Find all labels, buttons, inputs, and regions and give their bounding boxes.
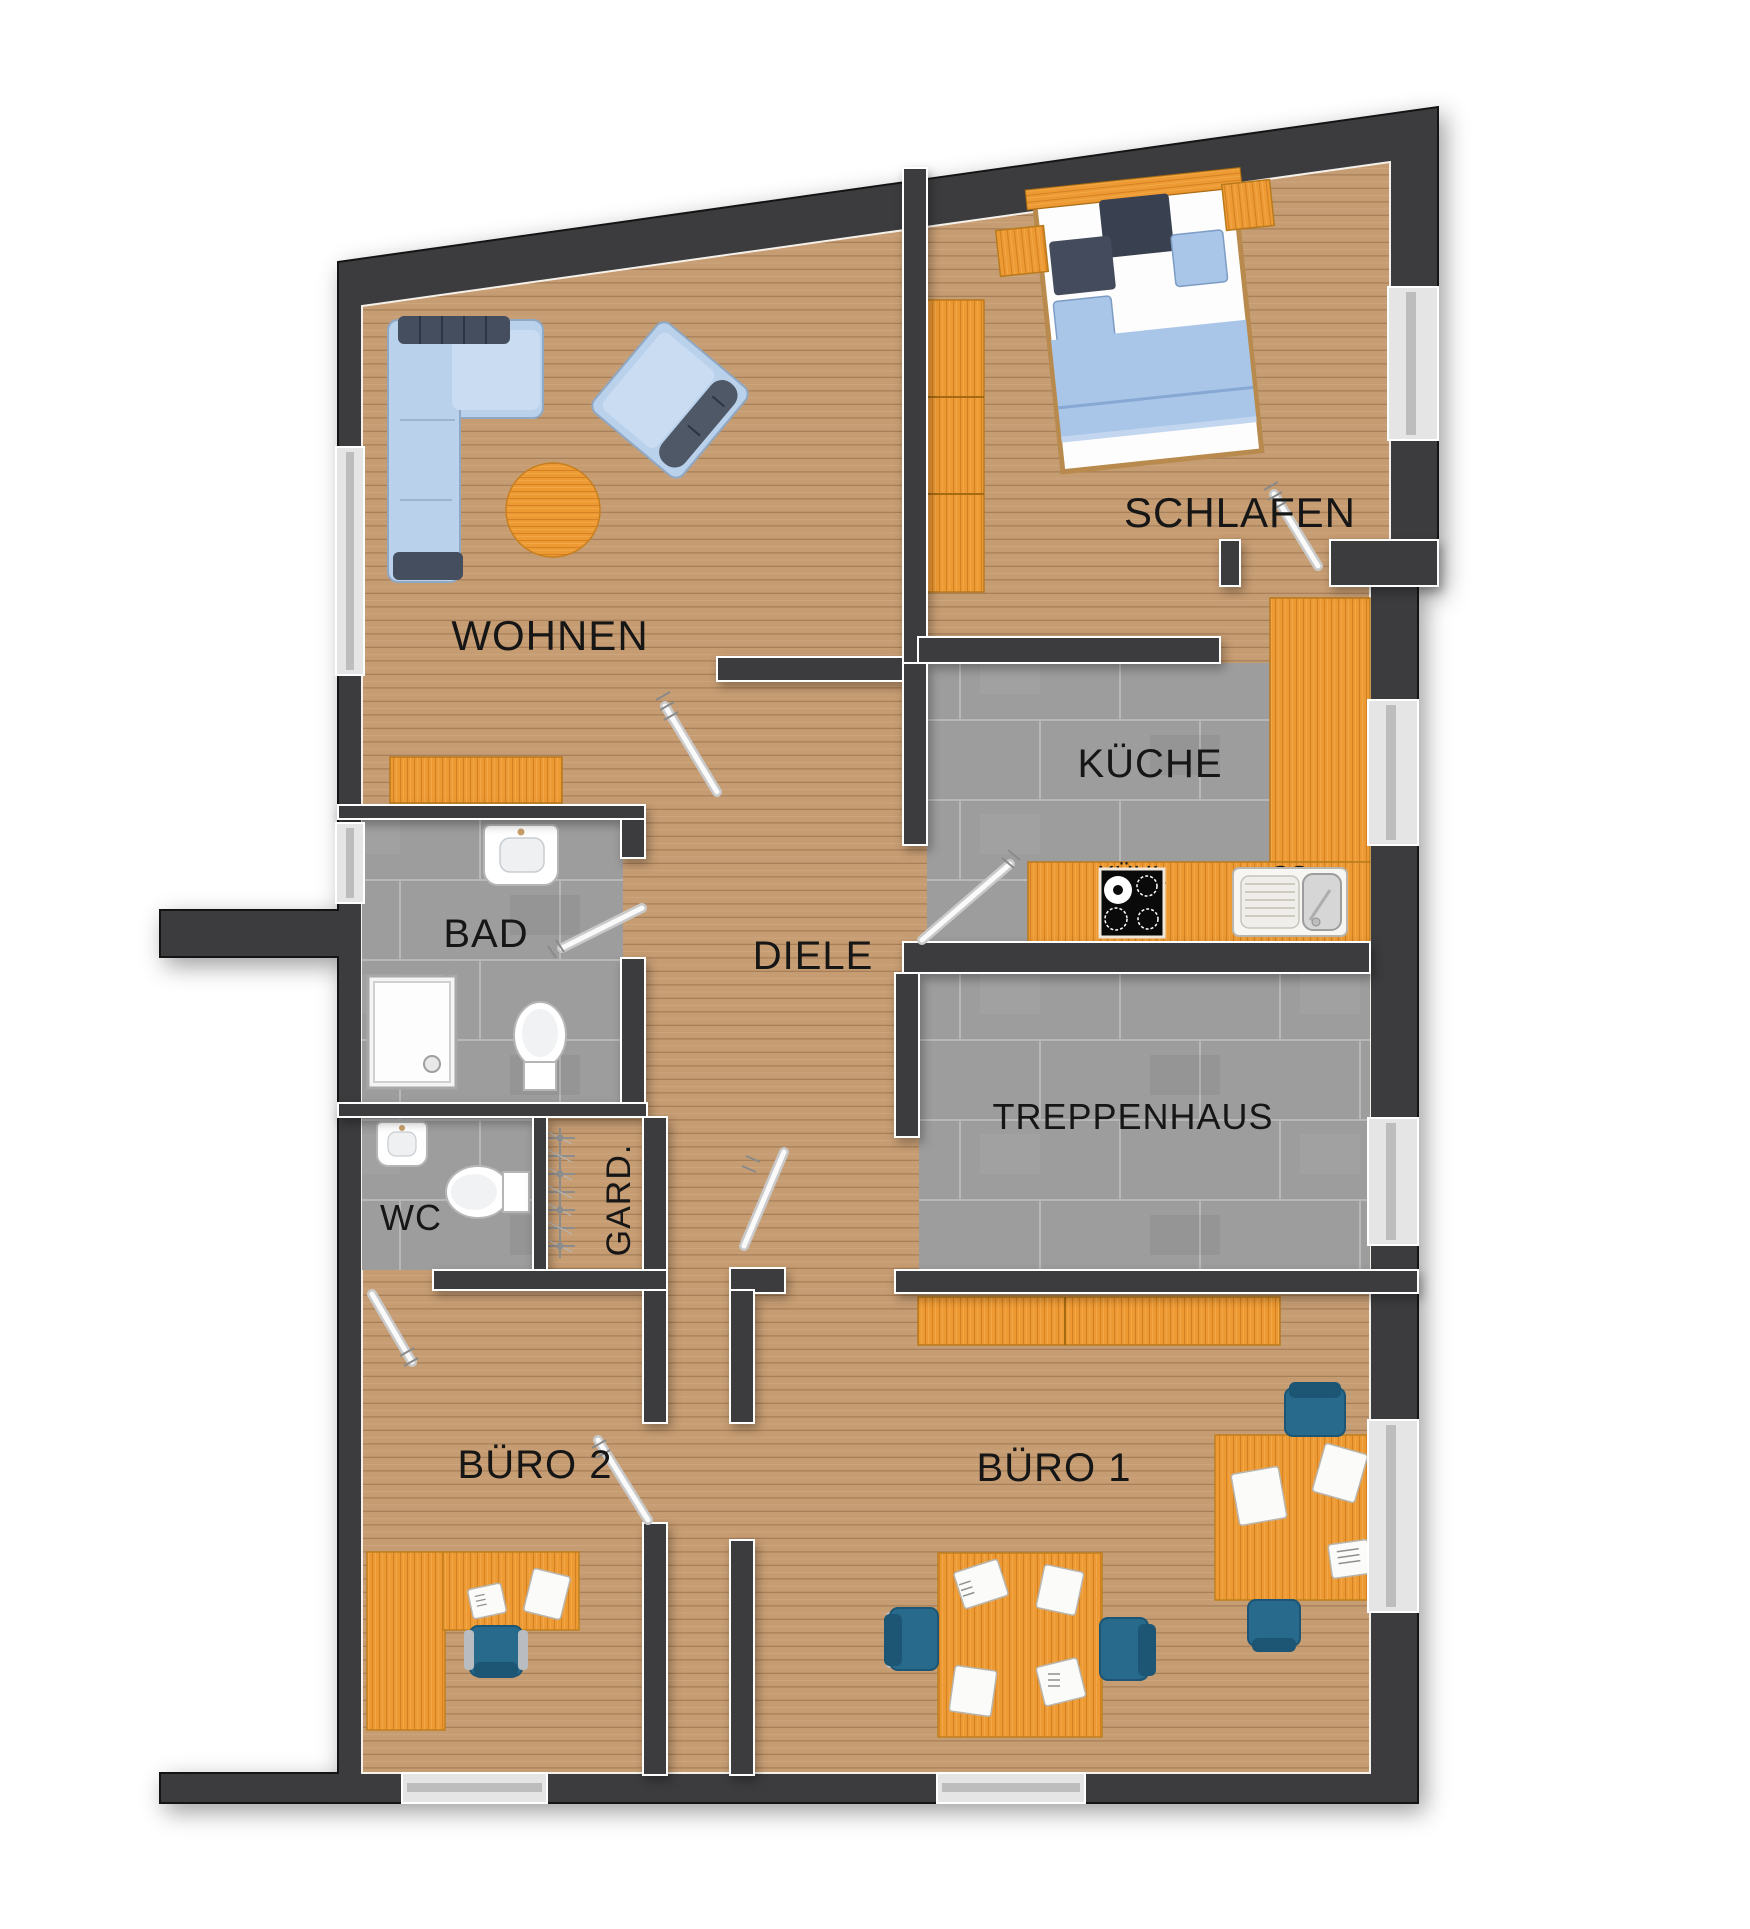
label-garderobe: GARD. [600,1144,638,1257]
label-diele: DIELE [753,934,874,978]
office-chair [464,1626,528,1678]
window [336,447,364,675]
window [402,1773,547,1803]
label-treppenhaus: TREPPENHAUS [992,1096,1273,1137]
buero2-desk-v [367,1552,445,1730]
shower [368,966,456,1088]
label-kueche: KÜCHE [1077,742,1222,786]
label-wc: WC [380,1197,442,1238]
label-bad: BAD [443,912,528,956]
bad-sink [484,825,558,885]
office-chair [884,1608,938,1670]
wc-toilet [446,1166,529,1218]
office-chair [1100,1618,1156,1680]
window [1368,1420,1418,1612]
office-chair [1285,1382,1345,1436]
window [1388,287,1438,440]
label-schlafen: SCHLAFEN [1124,489,1356,536]
office-chair [1248,1600,1300,1652]
nightstand-right [1222,180,1275,231]
label-buero1: BÜRO 1 [977,1446,1132,1490]
window [336,823,364,903]
round-rug [506,463,600,557]
label-buero2: BÜRO 2 [458,1443,613,1487]
window [1368,700,1418,845]
kitchen-sink [1233,868,1347,936]
window [1368,1118,1418,1245]
wc-sink [377,1122,427,1166]
wohnen-sideboard [390,757,562,803]
label-wohnen: WOHNEN [451,612,648,659]
kueche-counter-column [1270,598,1370,862]
floorplan-page: KÜHL GS [0,0,1750,1929]
cooktop [1100,869,1164,937]
window [937,1773,1085,1803]
nightstand-left [996,226,1049,277]
schlafen-wardrobe [922,300,984,592]
floorplan-drawing: KÜHL GS [0,0,1750,1929]
buero1-sideboard [918,1297,1280,1345]
